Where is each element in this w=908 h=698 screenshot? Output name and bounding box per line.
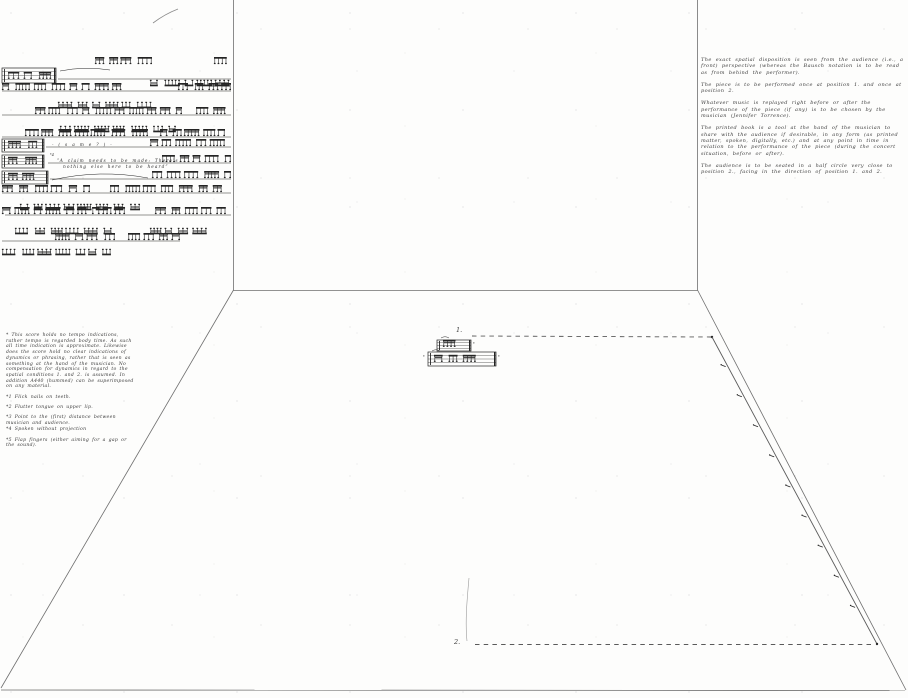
floor-right-edge: [698, 290, 907, 690]
position-2-label: 2.: [454, 639, 460, 646]
path-corner-dot-2: [876, 643, 878, 645]
fragment-slur-1: [441, 337, 449, 338]
floor-front-edge: [1, 690, 905, 691]
footnote: *5 Flap fingers (either aiming for a gap…: [6, 438, 136, 449]
position-1-staff-fragments: * * *: [420, 330, 505, 370]
score-notation: - ( s a m e ? ) - *4 “A claim needs to b…: [0, 55, 233, 255]
note-paragraph: The piece is to be performed once at pos…: [701, 82, 904, 95]
note-paragraph: The exact spatial disposition is seen fr…: [701, 57, 904, 76]
footnote: * This score holds no tempo indications,…: [6, 333, 136, 390]
note-paragraph: The printed book is a tool at the hand o…: [701, 125, 904, 156]
note-paragraph: Whatever music is replayed right before …: [701, 100, 904, 119]
fragment-mark-3: *: [498, 355, 500, 359]
path-diagonal-line: [712, 337, 877, 644]
pen-stroke: [153, 9, 178, 23]
footnote: *2 Flutter tongue on upper lip.: [6, 405, 136, 411]
scanned-score-page: - ( s a m e ? ) - *4 “A claim needs to b…: [0, 0, 908, 698]
footnote: *1 Flick nails on teeth.: [6, 395, 136, 401]
score-claim-line2: nothing else here to be heard”: [63, 165, 169, 170]
path-faint-curve: [466, 578, 469, 641]
fragment-mark-1: *: [473, 342, 475, 346]
note-paragraph: The audience is to be seated in a half c…: [701, 163, 904, 176]
score-claim-marker: *4: [50, 153, 54, 157]
performance-notes-block: The exact spatial disposition is seen fr…: [701, 57, 904, 181]
position-1-label: 1.: [456, 327, 462, 334]
footnotes-block: * This score holds no tempo indications,…: [6, 333, 136, 453]
footnote: *3 Point to the (first) distance between…: [6, 415, 136, 426]
path-dashed-to-wall: [472, 336, 711, 337]
fragment-mark-2: *: [423, 355, 425, 359]
footnote: *4 Spoken without projection: [6, 427, 136, 433]
